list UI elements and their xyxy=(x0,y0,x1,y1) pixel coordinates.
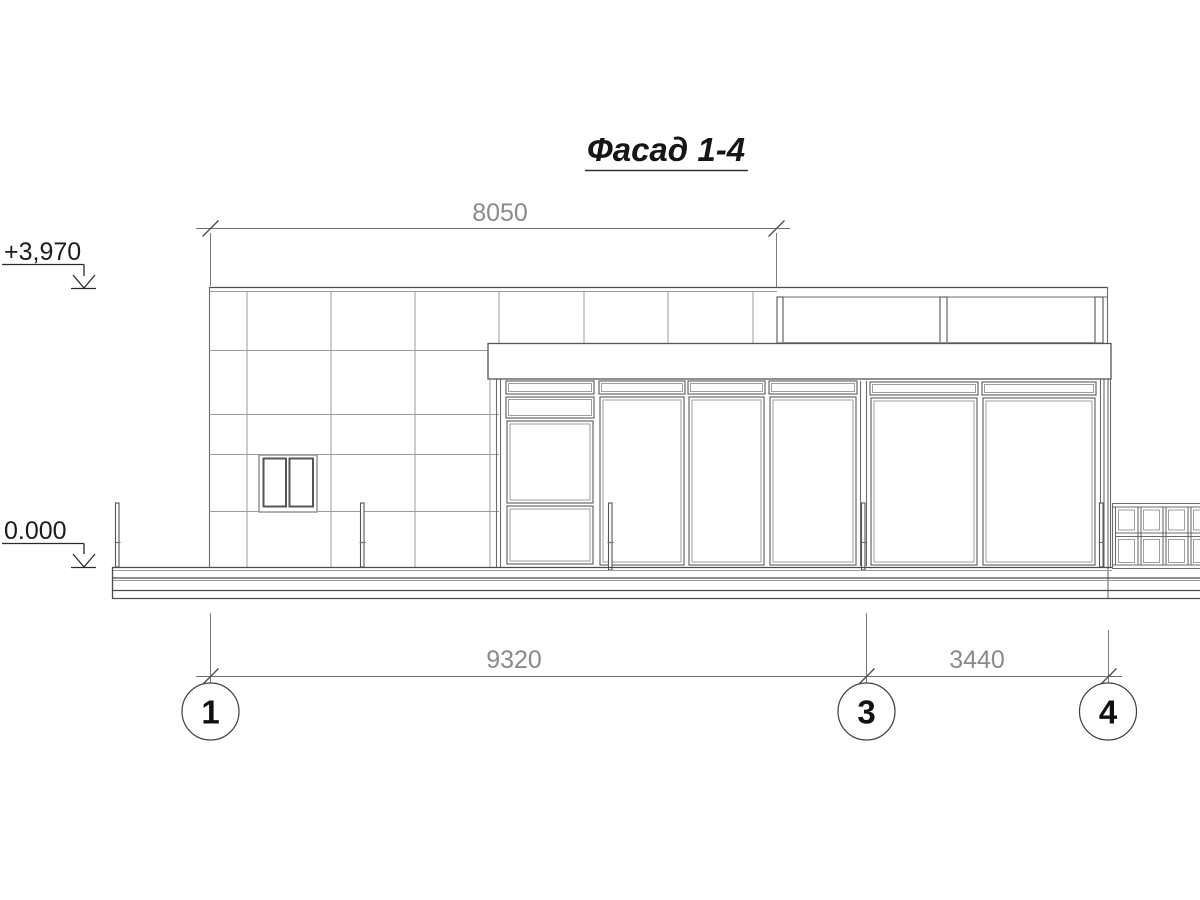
elevation-arrow-icon xyxy=(73,275,95,288)
elevation-mark-roof: +3,970 xyxy=(2,238,96,289)
handrail-post xyxy=(1100,503,1104,567)
handrail-post xyxy=(609,503,613,570)
axis-label-1: 1 xyxy=(201,694,219,731)
roof-parapet-railing xyxy=(777,287,1108,344)
title-block: Фасад 1-4 xyxy=(585,131,748,171)
glass-pane xyxy=(600,397,684,565)
window-pane-left xyxy=(264,459,287,507)
storefront-section-d xyxy=(769,381,857,565)
storefront-section-a xyxy=(506,381,594,564)
dimension-bottom: 9320 3440 xyxy=(196,613,1122,685)
axis-label-4: 4 xyxy=(1099,694,1118,731)
transom-pane xyxy=(982,382,1096,395)
handrail-post xyxy=(361,503,365,567)
facade-elevation-drawing: 8050 +3,970 0.000 9320 3440 1 3 4 xyxy=(0,0,1200,900)
storefront xyxy=(490,379,1111,598)
transom-pane xyxy=(506,397,594,418)
dimension-top: 8050 xyxy=(196,199,790,287)
dimension-1-3-text: 9320 xyxy=(486,646,542,674)
dimension-top-text: 8050 xyxy=(472,199,528,227)
window-pane-right xyxy=(290,459,314,507)
transom-pane xyxy=(769,381,857,394)
facade-drawing-sheet: 8050 +3,970 0.000 9320 3440 1 3 4 xyxy=(0,0,1200,900)
handrail-post xyxy=(862,503,866,570)
glass-pane xyxy=(770,397,856,565)
storefront-section-c xyxy=(688,381,765,565)
right-fence xyxy=(1112,503,1200,569)
elevation-mark-ground: 0.000 xyxy=(2,517,96,568)
glass-pane xyxy=(871,398,977,565)
transom-pane xyxy=(688,381,765,394)
axis-label-3: 3 xyxy=(857,694,875,731)
tile-row-lines xyxy=(209,351,499,512)
transom-pane xyxy=(506,381,594,394)
parapet-post xyxy=(1095,297,1103,343)
dimension-3-4-text: 3440 xyxy=(949,646,1005,674)
transom-pane xyxy=(870,382,978,395)
glass-pane xyxy=(507,506,593,564)
glass-pane xyxy=(689,397,764,565)
elevation-roof-value: +3,970 xyxy=(4,238,81,266)
transom-pane xyxy=(599,381,685,394)
glass-pane xyxy=(507,421,593,503)
storefront-section-f xyxy=(982,382,1096,565)
glass-pane xyxy=(983,398,1095,565)
storefront-section-e xyxy=(870,382,978,565)
wall-window xyxy=(259,455,317,512)
storefront-left-pier xyxy=(490,379,501,567)
fascia-band xyxy=(488,344,1111,380)
handrail-post xyxy=(116,503,120,567)
ground-slab xyxy=(112,567,1200,599)
parapet-post xyxy=(940,297,947,343)
drawing-title: Фасад 1-4 xyxy=(587,131,745,168)
axis-bubbles: 1 3 4 xyxy=(182,683,1137,740)
elevation-arrow-icon xyxy=(73,554,95,567)
elevation-ground-value: 0.000 xyxy=(4,517,67,545)
parapet-post xyxy=(777,297,783,343)
